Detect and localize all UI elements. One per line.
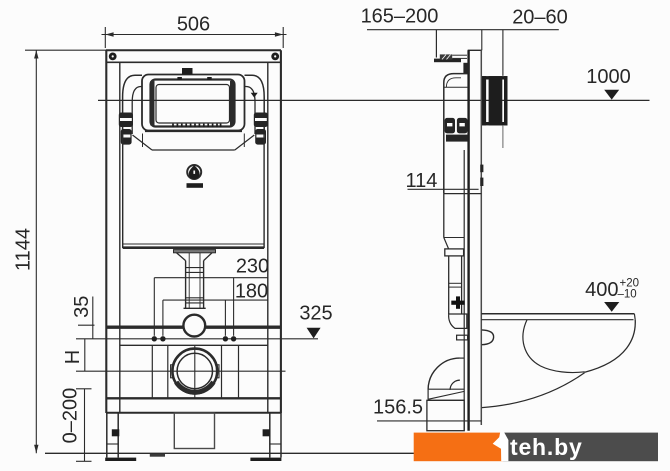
svg-text:1144: 1144 (13, 228, 35, 271)
svg-text:400: 400 (585, 279, 618, 301)
svg-text:114: 114 (406, 170, 438, 192)
svg-text:teh.by: teh.by (510, 434, 583, 460)
svg-text:20–60: 20–60 (512, 7, 568, 29)
svg-text:325: 325 (299, 303, 332, 325)
svg-text:165–200: 165–200 (361, 6, 439, 28)
svg-text:1000: 1000 (586, 66, 631, 88)
svg-text:0–200: 0–200 (60, 388, 82, 444)
svg-text:230: 230 (236, 256, 269, 278)
svg-text:35: 35 (71, 296, 93, 318)
svg-text:–10: –10 (618, 289, 637, 301)
svg-text:180: 180 (235, 280, 268, 302)
svg-text:H: H (62, 350, 84, 364)
svg-text:506: 506 (177, 14, 210, 36)
svg-text:156.5: 156.5 (373, 397, 423, 419)
